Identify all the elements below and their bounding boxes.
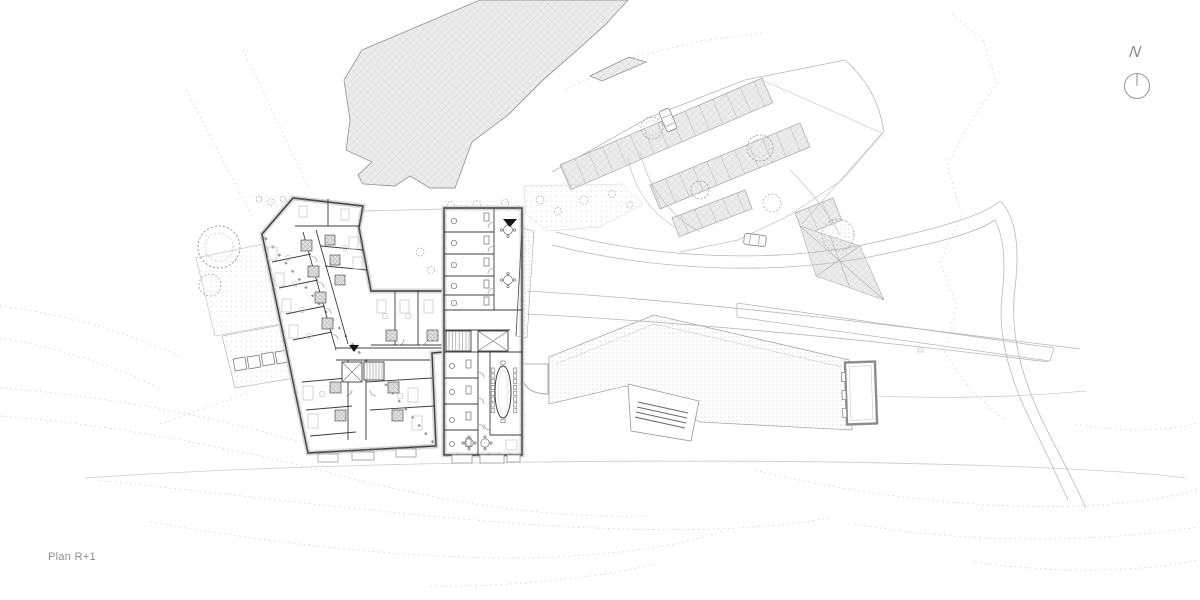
elevator-icon: [478, 331, 508, 351]
floor-plan-drawing: [0, 0, 1200, 600]
hatched-annex: [590, 57, 646, 81]
planter: [522, 364, 548, 394]
left-wing: [262, 198, 444, 462]
stair-icon: [364, 362, 384, 380]
pavilion-structure: [841, 361, 877, 424]
terrain-contours: [0, 14, 1198, 586]
plan-title: Plan R+1: [48, 551, 96, 563]
central-wing: [444, 208, 522, 463]
balconies: [452, 455, 520, 463]
terrace: [522, 315, 877, 441]
car-icon: [743, 233, 766, 247]
north-label: N: [1128, 44, 1142, 62]
elevator-icon: [342, 362, 362, 382]
north-arrow-icon: [1125, 74, 1150, 99]
parking-area: [552, 60, 884, 300]
site-plan-canvas: N Plan R+1: [0, 0, 1200, 600]
stair-icon: [446, 331, 471, 351]
